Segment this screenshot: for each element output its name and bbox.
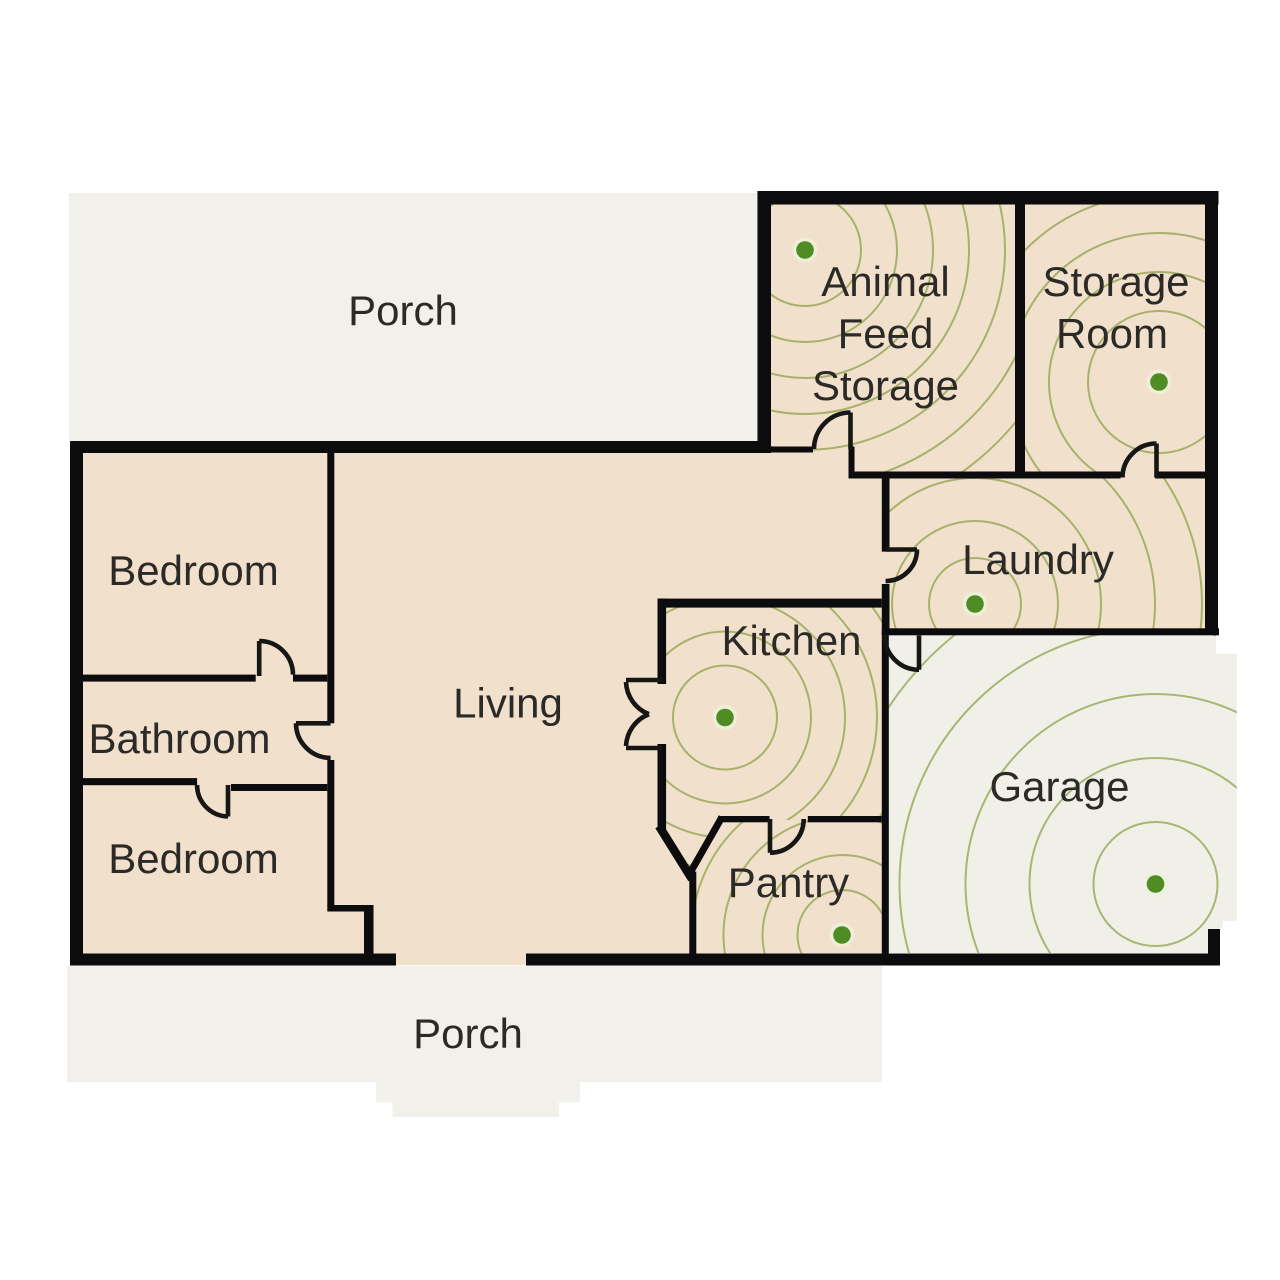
svg-text:Kitchen: Kitchen: [721, 617, 861, 664]
svg-text:Garage: Garage: [989, 763, 1129, 810]
svg-text:Feed: Feed: [838, 310, 934, 357]
svg-text:Porch: Porch: [413, 1010, 523, 1057]
svg-text:Room: Room: [1056, 310, 1168, 357]
svg-text:Bedroom: Bedroom: [108, 835, 278, 882]
svg-text:Storage: Storage: [1042, 258, 1189, 305]
svg-text:Bedroom: Bedroom: [108, 547, 278, 594]
svg-text:Laundry: Laundry: [962, 536, 1114, 583]
svg-text:Porch: Porch: [348, 287, 458, 334]
svg-text:Storage: Storage: [812, 362, 959, 409]
svg-text:Pantry: Pantry: [728, 859, 849, 906]
svg-text:Bathroom: Bathroom: [88, 715, 270, 762]
svg-text:Living: Living: [453, 680, 563, 727]
svg-text:Animal: Animal: [821, 258, 949, 305]
